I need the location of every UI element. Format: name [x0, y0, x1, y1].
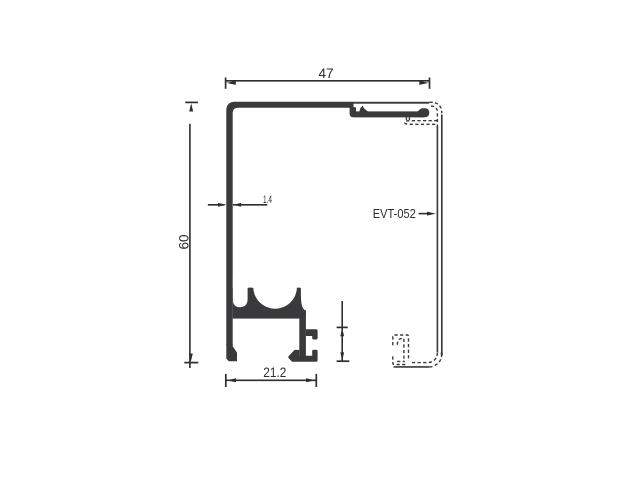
svg-text:47: 47 [318, 66, 333, 81]
svg-text:60: 60 [177, 234, 192, 249]
svg-text:EVT-052: EVT-052 [373, 206, 416, 221]
svg-text:21.2: 21.2 [263, 365, 286, 380]
svg-text:1.4: 1.4 [263, 194, 272, 206]
